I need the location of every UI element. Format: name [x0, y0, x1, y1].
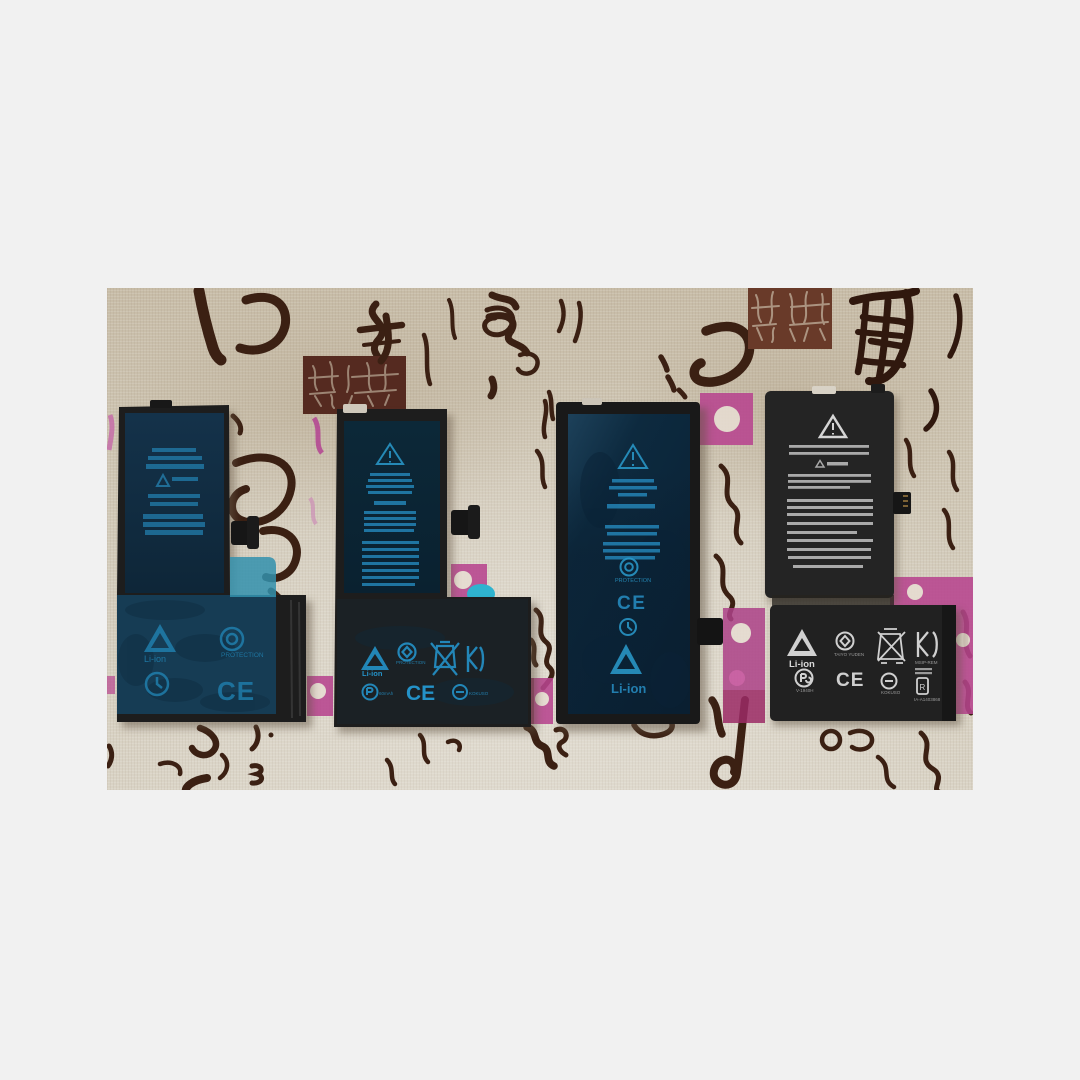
svg-text:PROTECTION: PROTECTION — [396, 660, 426, 665]
svg-text:CE: CE — [406, 682, 435, 705]
svg-text:CE: CE — [836, 670, 864, 691]
svg-text:PROTECTION: PROTECTION — [615, 578, 651, 584]
svg-text:KOKUSO: KOKUSO — [469, 691, 489, 696]
svg-text:Li-ion: Li-ion — [362, 669, 383, 678]
svg-text:TAIYO YUDEN: TAIYO YUDEN — [834, 652, 864, 657]
svg-text:KOKUSO: KOKUSO — [881, 690, 901, 695]
svg-text:CE: CE — [617, 593, 646, 614]
svg-text:CE: CE — [217, 676, 255, 706]
svg-text:Li-ion: Li-ion — [611, 681, 646, 696]
svg-text:IA-A1403868: IA-A1403868 — [914, 697, 941, 702]
svg-text:V-1940H: V-1940H — [796, 688, 814, 693]
svg-text:Li-ion: Li-ion — [789, 659, 815, 670]
svg-text:R: R — [920, 683, 926, 692]
svg-text:PROTECTION: PROTECTION — [221, 652, 264, 659]
svg-text:60mAh: 60mAh — [379, 691, 394, 696]
svg-text:MSIP-REM: MSIP-REM — [915, 660, 938, 665]
svg-text:Li-ion: Li-ion — [144, 654, 166, 664]
